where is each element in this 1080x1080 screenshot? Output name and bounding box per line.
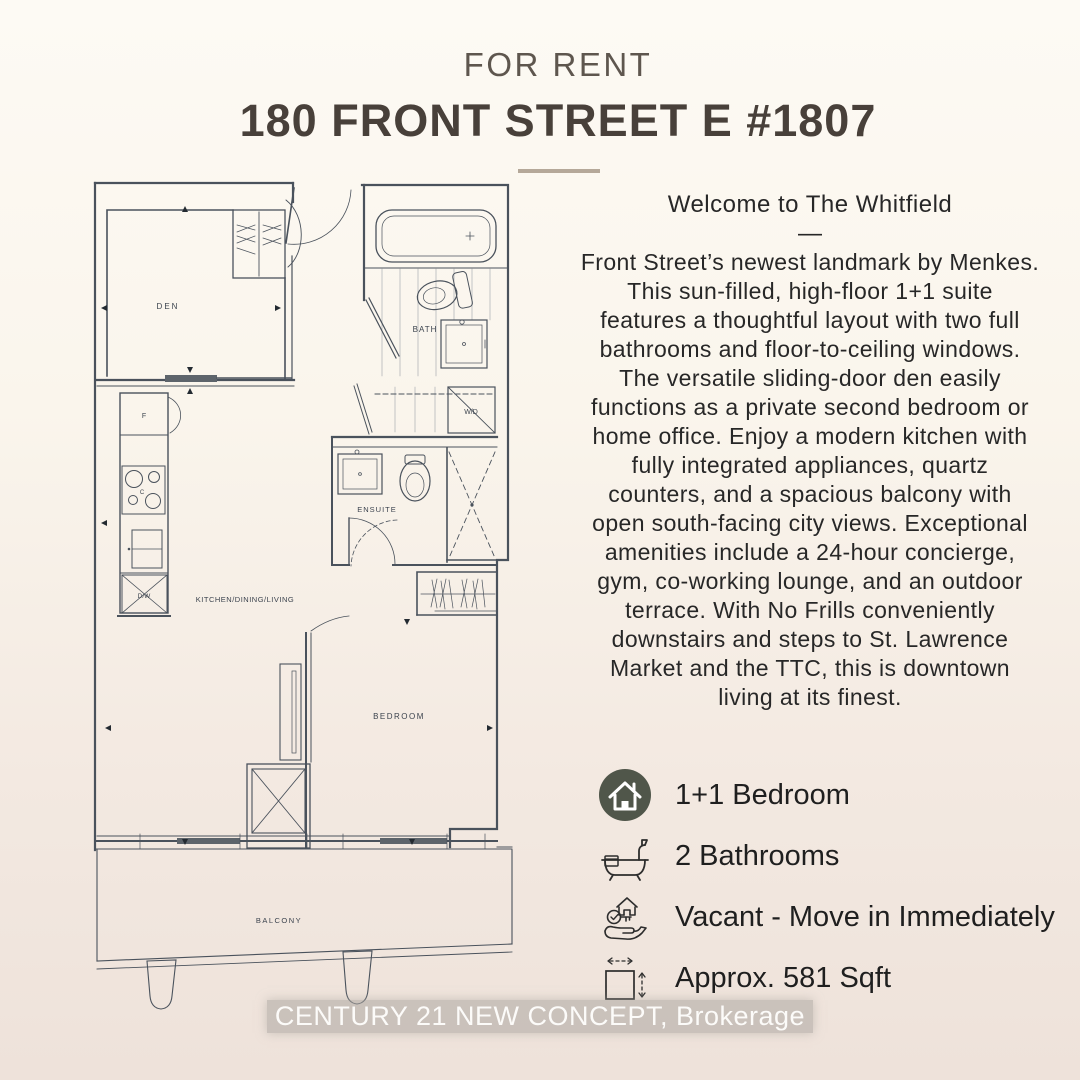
description-line: fully integrated appliances, quartz (570, 451, 1050, 480)
key-house-hand-icon (597, 890, 653, 944)
feature-row-bedrooms: 1+1 Bedroom (597, 768, 1055, 822)
page-title: 180 FRONT STREET E #1807 (36, 95, 1080, 147)
description-line: Front Street’s newest landmark by Menkes… (570, 248, 1050, 277)
description-line: downstairs and steps to St. Lawrence (570, 625, 1050, 654)
description-block: Welcome to The Whitfield — Front Street’… (570, 190, 1050, 712)
house-circle-icon (597, 768, 653, 822)
description-line: open south-facing city views. Exceptiona… (570, 509, 1050, 538)
ensuite-label: ENSUITE (357, 505, 397, 514)
dishwasher-label: D/W (138, 593, 152, 600)
feature-label-occupancy: Vacant - Move in Immediately (675, 901, 1055, 934)
feature-label-area: Approx. 581 Sqft (675, 962, 891, 995)
title-divider (518, 169, 600, 173)
bath-label: BATH (413, 325, 438, 334)
den-label: DEN (157, 302, 180, 311)
description-line: This sun-filled, high-floor 1+1 suite (570, 277, 1050, 306)
wd-label: W/D (464, 409, 478, 416)
kitchen-living-label: KITCHEN/DINING/LIVING (196, 595, 294, 604)
bedroom-label: BEDROOM (373, 712, 425, 721)
description-dash: — (570, 219, 1050, 248)
balcony-label: BALCONY (256, 916, 302, 925)
feature-row-area: Approx. 581 Sqft (597, 951, 1055, 1005)
feature-label-bathrooms: 2 Bathrooms (675, 840, 839, 873)
description-heading: Welcome to The Whitfield (570, 190, 1050, 219)
brokerage-watermark: CENTURY 21 NEW CONCEPT, Brokerage (267, 1000, 813, 1033)
description-line: functions as a private second bedroom or (570, 393, 1050, 422)
description-line: home office. Enjoy a modern kitchen with (570, 422, 1050, 451)
features-list: 1+1 Bedroom 2 Bathrooms (597, 768, 1055, 1005)
description-line: features a thoughtful layout with two fu… (570, 306, 1050, 335)
description-line: living at its finest. (570, 683, 1050, 712)
description-line: amenities include a 24-hour concierge, (570, 538, 1050, 567)
description-line: bathrooms and floor-to-ceiling windows. (570, 335, 1050, 364)
cooktop-label: C (140, 490, 145, 496)
description-line: terrace. With No Frills conveniently (570, 596, 1050, 625)
description-line: counters, and a spacious balcony with (570, 480, 1050, 509)
feature-row-occupancy: Vacant - Move in Immediately (597, 890, 1055, 944)
floor-plan: DEN BATH W/D ENSUITE KITCHEN/DINING/LIVI… (85, 170, 520, 1015)
flyer-page: FOR RENT 180 FRONT STREET E #1807 (0, 0, 1080, 1080)
description-line: Market and the TTC, this is downtown (570, 654, 1050, 683)
description-line: gym, co-working lounge, and an outdoor (570, 567, 1050, 596)
footer: CENTURY 21 NEW CONCEPT, Brokerage (0, 1000, 1080, 1033)
floor-area-icon (597, 951, 653, 1005)
bathtub-icon (597, 829, 653, 883)
feature-label-bedrooms: 1+1 Bedroom (675, 779, 850, 812)
fridge-label: F (142, 413, 146, 420)
feature-row-bathrooms: 2 Bathrooms (597, 829, 1055, 883)
description-line: The versatile sliding-door den easily (570, 364, 1050, 393)
for-rent-label: FOR RENT (36, 46, 1080, 84)
